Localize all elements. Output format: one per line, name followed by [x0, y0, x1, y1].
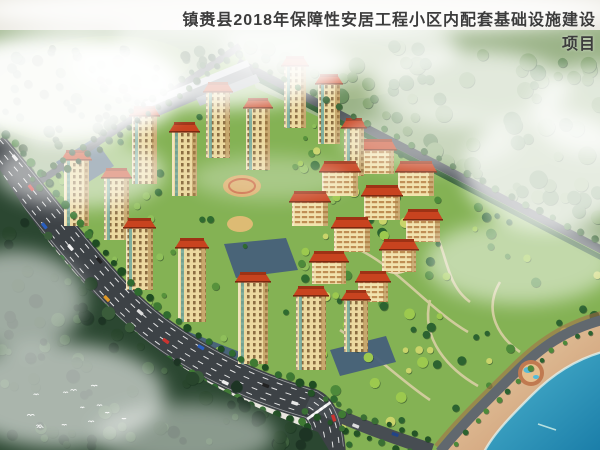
beach-terrace [518, 360, 544, 386]
aerial-rendering-photo: 镇赉县2018年保障性安居工程小区内配套基础设施建设项目 [0, 0, 600, 450]
rendering-scene [0, 0, 600, 450]
project-title: 镇赉县2018年保障性安居工程小区内配套基础设施建设项目 [176, 6, 596, 54]
